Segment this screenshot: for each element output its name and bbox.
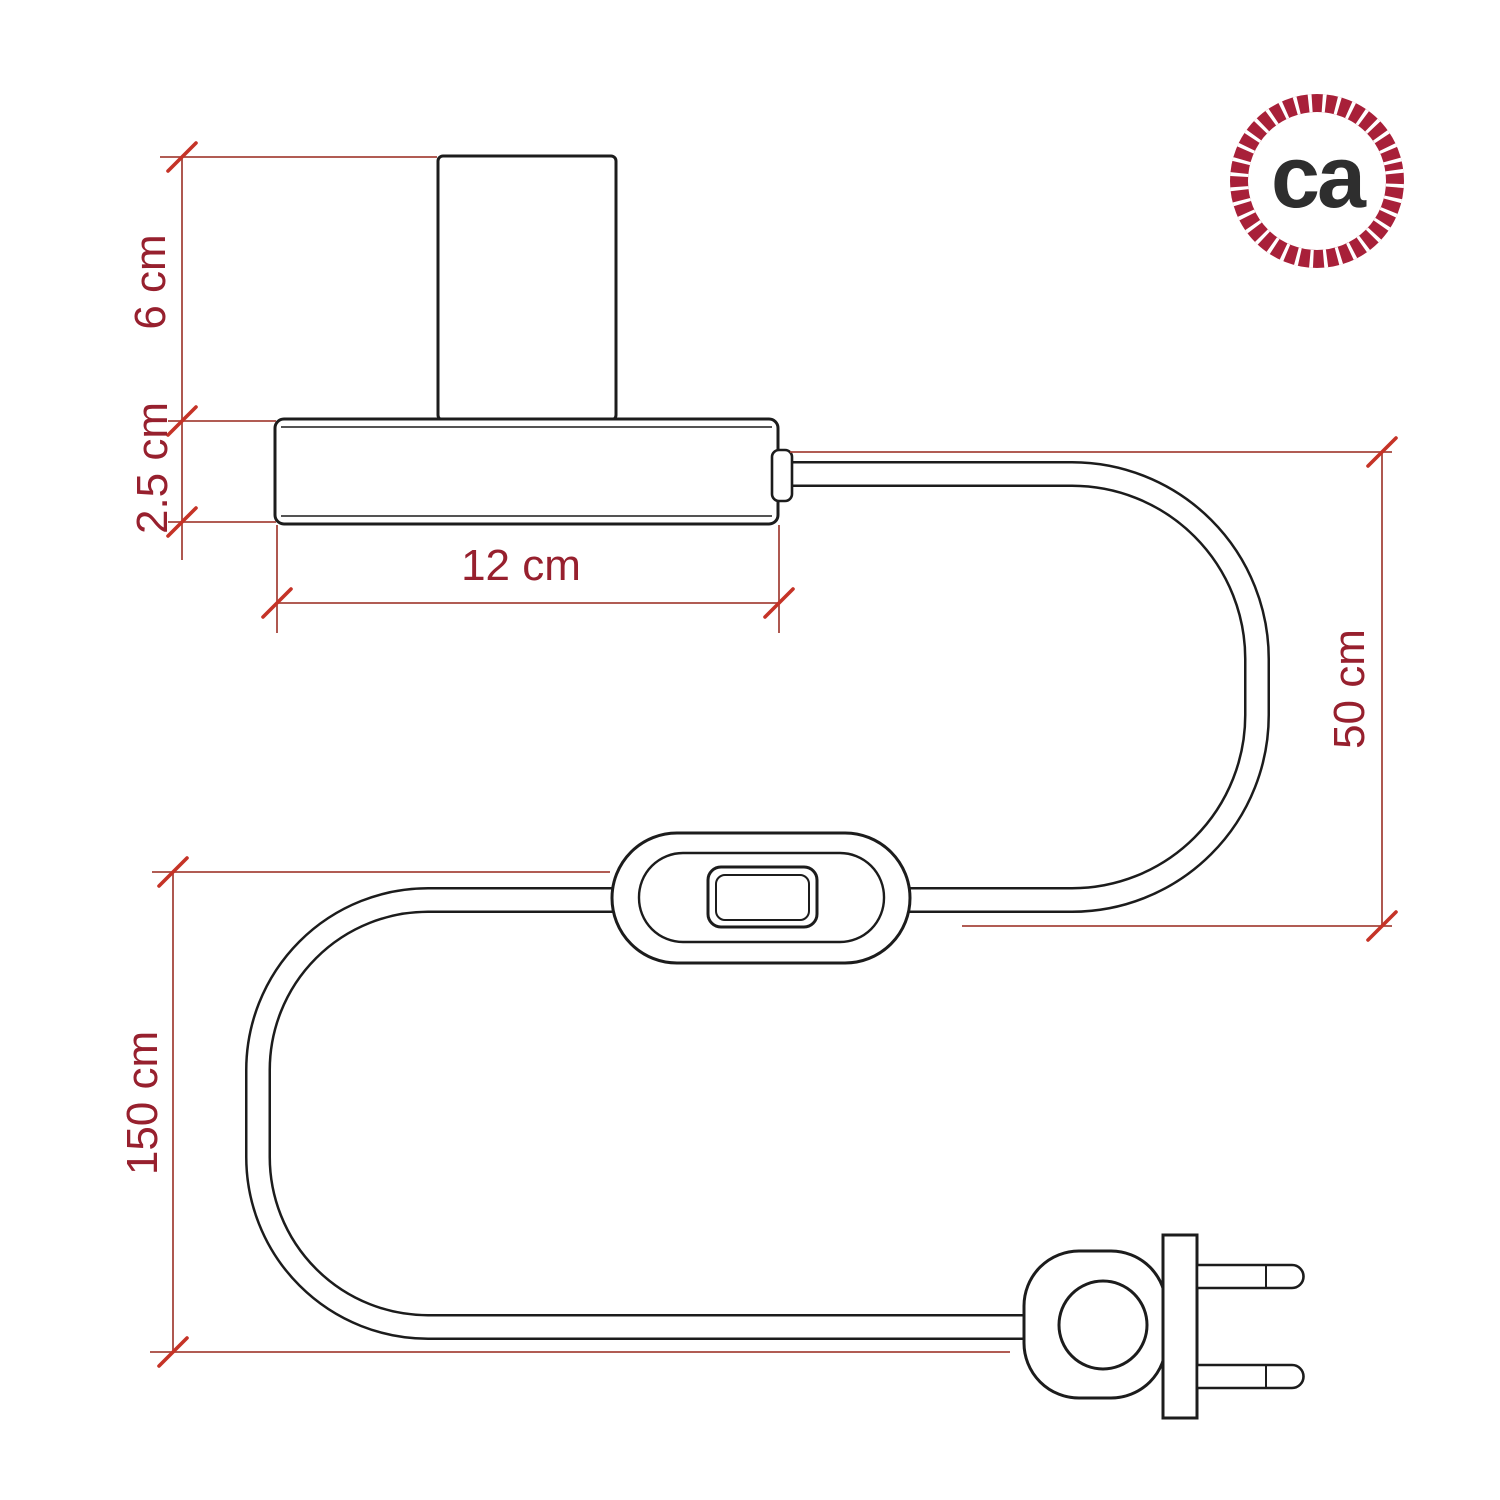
label-base-width: 12 cm <box>461 544 581 588</box>
creative-cables-logo: ca <box>1222 86 1412 276</box>
plug-grip-circle <box>1059 1281 1147 1369</box>
inline-switch <box>612 833 910 963</box>
plug-face-plate <box>1163 1235 1197 1418</box>
plug-prong-bottom <box>1197 1365 1304 1388</box>
label-cable-150: 150 cm <box>121 1031 165 1175</box>
power-plug <box>1024 1235 1304 1418</box>
plug-prong-top <box>1197 1265 1304 1288</box>
dimension-base-thickness <box>168 407 276 536</box>
label-socket-height: 6 cm <box>129 234 173 329</box>
lamp-base <box>275 419 792 524</box>
logo-letters: ca <box>1222 86 1412 276</box>
switch-rocker-button <box>708 867 817 927</box>
label-cable-50: 50 cm <box>1328 629 1372 749</box>
base-cable-connector <box>772 450 792 501</box>
lamp-socket-cylinder <box>438 156 616 420</box>
lamp-dimension-diagram: 6 cm 2.5 cm 12 cm 50 cm 150 cm ca <box>0 0 1500 1500</box>
label-base-thickness: 2.5 cm <box>131 402 175 534</box>
